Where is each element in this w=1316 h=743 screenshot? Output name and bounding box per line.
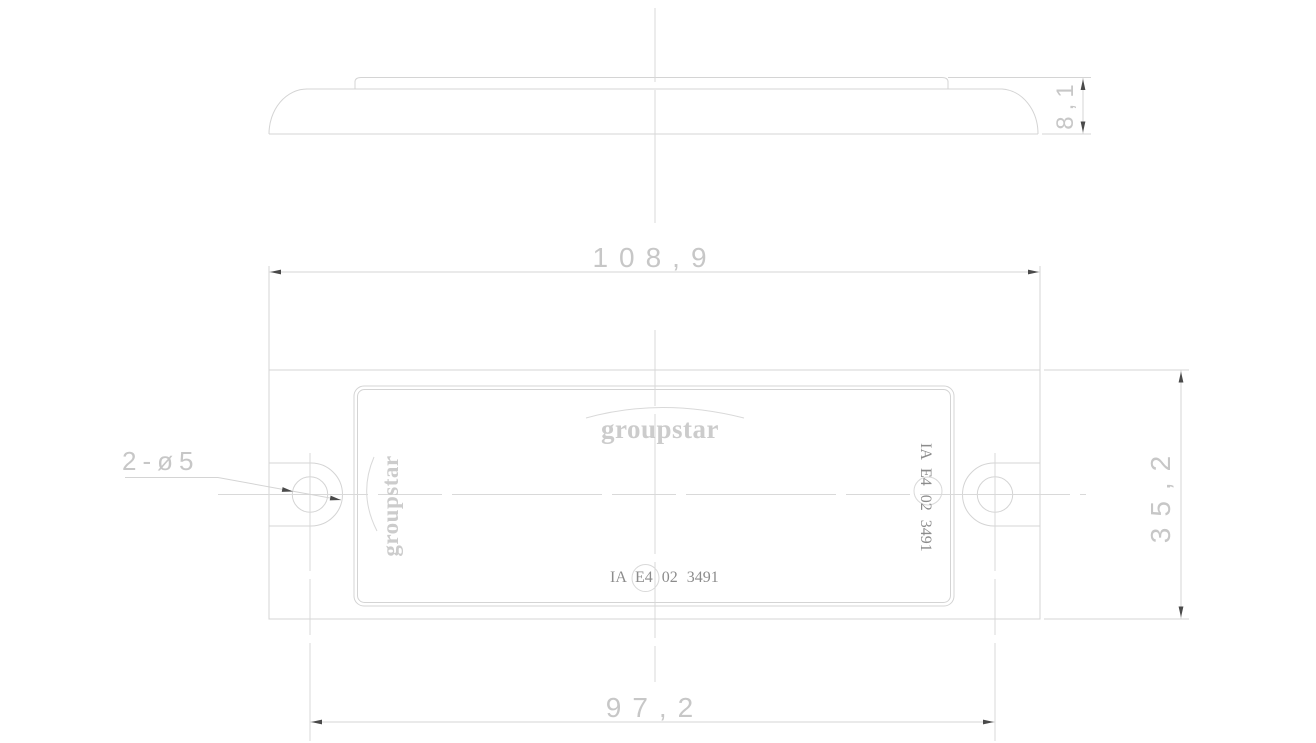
e4-circle-right	[914, 477, 942, 505]
lens-inner-outline	[358, 390, 951, 603]
front-view-centerlines	[218, 330, 1086, 741]
hole-callout-leader	[125, 478, 341, 501]
side-view-body-outline	[269, 89, 1038, 134]
dim-8-1-lines	[948, 78, 1091, 135]
dimension-arrowheads	[270, 79, 1183, 724]
side-view-lens-lip	[355, 78, 948, 90]
side-view	[269, 78, 1038, 135]
drawing-geometry	[0, 0, 1316, 743]
drawing-canvas: 8,1 108,9 35,2 97,2 2-ø5 groupstar group…	[0, 0, 1316, 743]
logo-top-swoosh-arc	[586, 408, 744, 419]
lens-outer-outline	[354, 386, 954, 606]
logo-left-swoosh-arc	[367, 457, 377, 531]
